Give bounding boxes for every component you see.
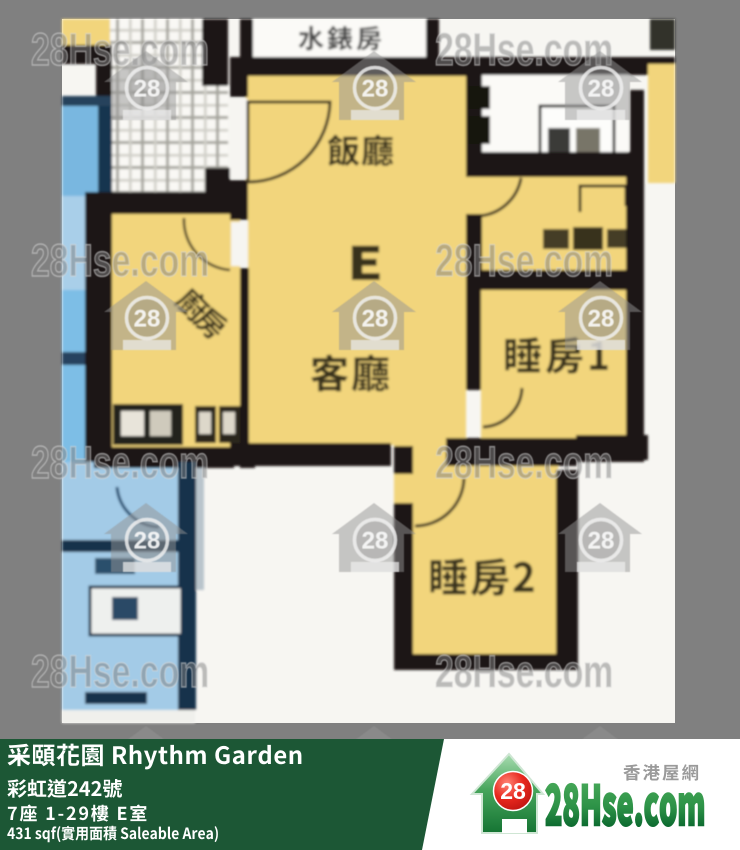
- svg-text:28: 28: [500, 778, 526, 804]
